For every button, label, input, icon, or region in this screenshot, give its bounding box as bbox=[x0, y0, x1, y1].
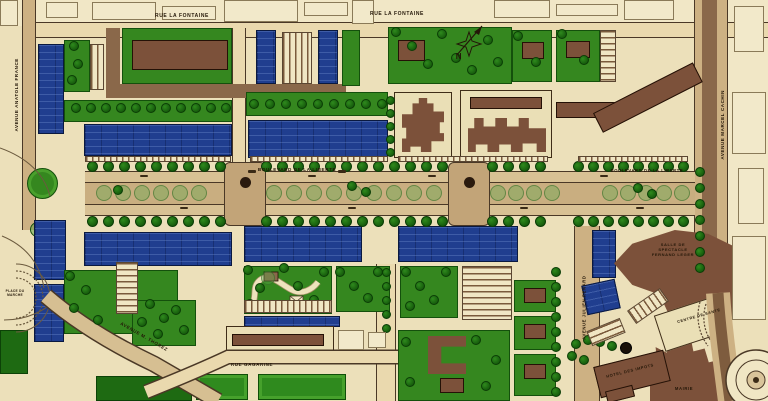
tree-icon bbox=[573, 216, 584, 227]
tree-icon bbox=[437, 216, 448, 227]
lawn-sr bbox=[400, 266, 458, 318]
street-label-avenue-marcel-cachin: AVENUE MARCEL CACHIN bbox=[720, 59, 726, 191]
boulevard-median bbox=[85, 183, 695, 204]
tree-icon bbox=[119, 216, 130, 227]
tree-icon bbox=[663, 216, 674, 227]
tree-icon bbox=[119, 161, 130, 172]
lawn-nc-strip bbox=[342, 30, 360, 86]
tree-icon bbox=[373, 216, 384, 227]
tree-icon bbox=[151, 216, 162, 227]
lawn-nc-band bbox=[246, 92, 388, 116]
street-label-boulevard-liberte-east: BOULEVARD DE LA LIBERTE bbox=[597, 168, 697, 173]
tree-icon bbox=[183, 161, 194, 172]
lawn-sw-corner bbox=[0, 330, 28, 374]
tree-icon bbox=[588, 216, 599, 227]
tree-icon bbox=[199, 216, 210, 227]
road-brown-horizontal bbox=[106, 84, 256, 98]
apartment-slab-sw-long bbox=[84, 232, 232, 266]
tree-icon bbox=[277, 216, 288, 227]
tree-icon bbox=[535, 216, 546, 227]
tree-icon bbox=[357, 216, 368, 227]
tree-icon bbox=[389, 216, 400, 227]
garden-house-ne-1 bbox=[522, 42, 544, 59]
parking-stripes bbox=[282, 32, 312, 84]
tree-icon bbox=[437, 161, 448, 172]
tree-icon bbox=[87, 216, 98, 227]
tree-icon bbox=[573, 161, 584, 172]
tree-icon bbox=[603, 216, 614, 227]
boulevard-south-carriageway bbox=[85, 204, 695, 216]
site-plan-map: RUE LA FONTAINE RUE LA FONTAINE AVENUE A… bbox=[0, 0, 768, 401]
tree-icon bbox=[325, 216, 336, 227]
garden-house-sr-2 bbox=[524, 324, 546, 339]
garden-park-sc bbox=[244, 266, 332, 314]
tree-icon bbox=[373, 161, 384, 172]
boulevard-label-dash-west bbox=[248, 170, 256, 173]
hedge-plot-1 bbox=[196, 374, 248, 400]
tree-icon bbox=[519, 216, 530, 227]
building-nw-brown bbox=[132, 40, 228, 70]
tree-icon bbox=[503, 216, 514, 227]
parking-stripes bbox=[578, 156, 688, 162]
apartment-tower-nc-2 bbox=[318, 30, 338, 84]
apartment-slab-nw-vertical bbox=[38, 44, 64, 134]
parking-stripes bbox=[462, 266, 512, 320]
street-label-rue-la-fontaine-east: RUE LA FONTAINE bbox=[332, 11, 462, 17]
tree-icon bbox=[607, 341, 617, 351]
tree-icon bbox=[503, 161, 514, 172]
building-sr-small bbox=[440, 378, 464, 393]
street-label-rue-gagarine: RUE GAGARINE bbox=[202, 362, 302, 368]
tree-icon bbox=[405, 161, 416, 172]
context-building-outline bbox=[338, 330, 364, 350]
tree-icon bbox=[389, 161, 400, 172]
compass-north-label: N bbox=[452, 52, 466, 62]
tree-icon bbox=[678, 216, 689, 227]
tree-icon bbox=[151, 161, 162, 172]
tree-icon bbox=[535, 161, 546, 172]
apartment-tower-nc-1 bbox=[256, 30, 276, 84]
tree-icon bbox=[309, 216, 320, 227]
boulevard-label-dash-east bbox=[338, 170, 346, 173]
garden-house-sr-3 bbox=[524, 364, 546, 379]
building-label-salle-de-spectacle: SALLE DE SPECTACLE FERNAND LEGER bbox=[634, 242, 712, 257]
civic-blue-tower-a bbox=[592, 230, 616, 278]
lawn-sc-square bbox=[336, 266, 390, 312]
garden-house-ne-2 bbox=[566, 41, 590, 58]
apartment-slab-nc-horizontal bbox=[248, 120, 388, 158]
lawn-sw-bottom-band bbox=[96, 376, 192, 401]
building-ne-diagonal bbox=[593, 62, 703, 132]
parking-stripes bbox=[85, 156, 231, 162]
building-courtyard-b-bar bbox=[470, 97, 542, 109]
street-label-avenue-anatole-france: AVENUE ANATOLE FRANCE bbox=[14, 30, 20, 160]
tree-icon bbox=[293, 216, 304, 227]
tree-icon bbox=[183, 216, 194, 227]
tree-icon bbox=[87, 161, 98, 172]
tree-icon bbox=[167, 216, 178, 227]
tree-icon bbox=[551, 267, 561, 277]
tree-icon bbox=[648, 216, 659, 227]
hedge-plot-2 bbox=[258, 374, 346, 400]
lawn-nw-1 bbox=[64, 40, 90, 92]
tree-icon bbox=[633, 216, 644, 227]
junction-circle-west bbox=[240, 177, 251, 188]
tree-icon bbox=[357, 161, 368, 172]
tree-icon bbox=[135, 216, 146, 227]
street-label-avenue-julien-renard: AVENUE JULIEN RENARD bbox=[581, 253, 586, 363]
tree-icon bbox=[405, 216, 416, 227]
tree-icon bbox=[103, 216, 114, 227]
tree-icon bbox=[199, 161, 210, 172]
tree-icon bbox=[620, 342, 632, 354]
street-label-rue-la-fontaine-west: RUE LA FONTAINE bbox=[117, 13, 247, 19]
building-gagarine-bar bbox=[232, 334, 324, 346]
apartment-slab-nw-horizontal bbox=[84, 124, 232, 156]
tree-icon bbox=[341, 216, 352, 227]
building-label-mairie: MAIRIE bbox=[660, 386, 708, 391]
tree-icon bbox=[421, 161, 432, 172]
tree-icon bbox=[135, 161, 146, 172]
apartment-sw-upper bbox=[34, 220, 66, 280]
tree-icon bbox=[618, 216, 629, 227]
boulevard-junction-east bbox=[448, 162, 490, 226]
apartment-sw-lower bbox=[34, 284, 64, 342]
place-square-label: PLACE DU MARCHE bbox=[1, 289, 29, 297]
apartment-slab-sr bbox=[398, 226, 518, 262]
tree-icon bbox=[519, 161, 530, 172]
lawn-nw-band bbox=[64, 100, 232, 122]
civic-blue-tower-b bbox=[581, 279, 620, 315]
parking-stripes bbox=[90, 44, 104, 90]
garden-house-sr-1 bbox=[524, 288, 546, 303]
tree-icon bbox=[167, 161, 178, 172]
apartment-slab-sc bbox=[244, 226, 362, 262]
junction-circle-east bbox=[464, 177, 475, 188]
tree-icon bbox=[421, 216, 432, 227]
roundabout-green bbox=[27, 168, 58, 199]
tree-icon bbox=[103, 161, 114, 172]
field-house bbox=[398, 40, 425, 61]
